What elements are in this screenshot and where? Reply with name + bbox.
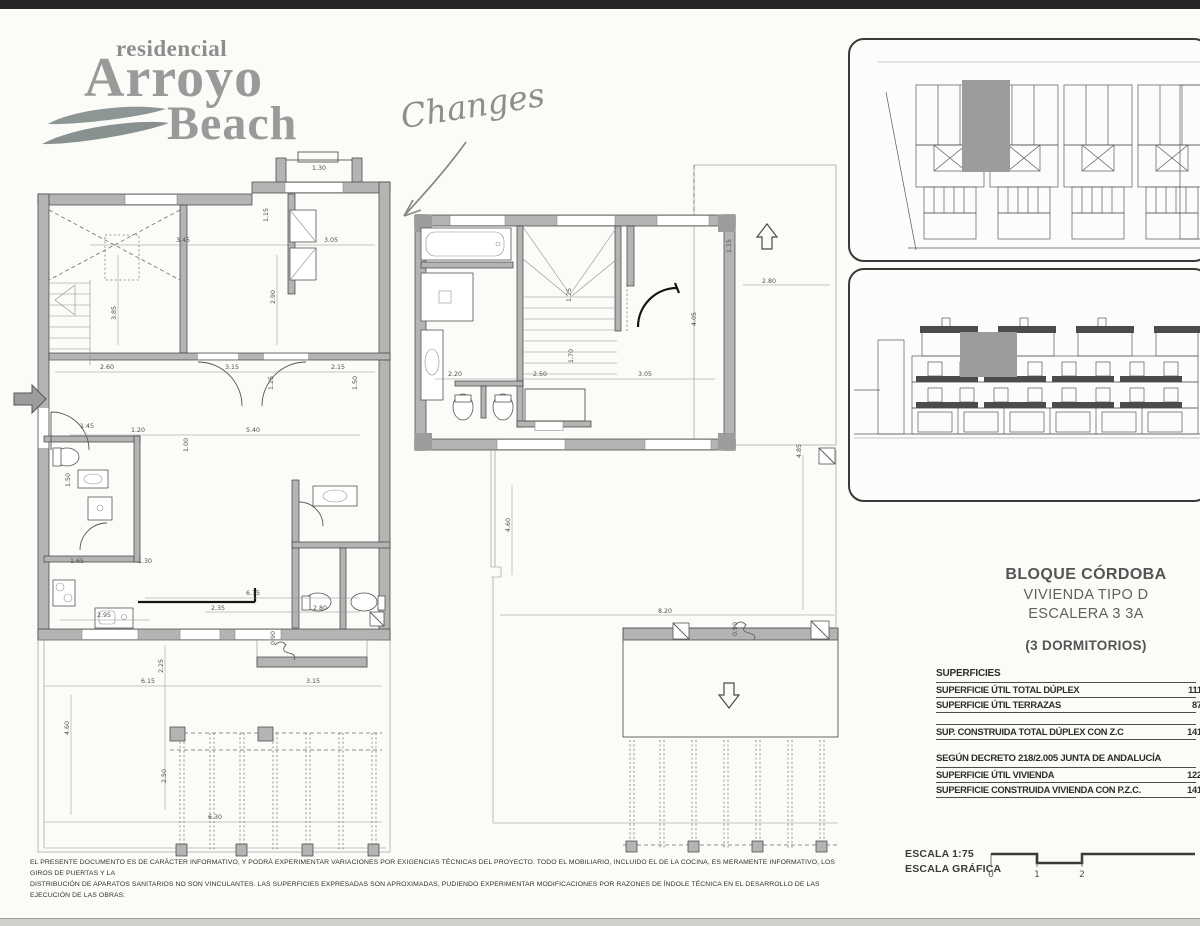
row-value: 122, bbox=[1187, 768, 1200, 782]
svg-text:1.65: 1.65 bbox=[70, 558, 84, 565]
bathtub-icon bbox=[421, 228, 511, 260]
row-value: 141, bbox=[1187, 783, 1200, 797]
svg-text:2.25: 2.25 bbox=[158, 659, 165, 673]
toilet-icon bbox=[53, 448, 79, 466]
svg-text:2: 2 bbox=[1079, 870, 1085, 880]
keyplan-elevation-box bbox=[848, 268, 1200, 502]
svg-text:3.85: 3.85 bbox=[111, 306, 118, 320]
drain-icon bbox=[819, 448, 835, 464]
svg-text:3.05: 3.05 bbox=[638, 371, 652, 378]
svg-text:0: 0 bbox=[988, 870, 994, 880]
entry-arrow-icon bbox=[12, 383, 48, 415]
svg-text:2.90: 2.90 bbox=[270, 290, 277, 304]
toilet-icon bbox=[351, 593, 385, 611]
logo-beach: Beach bbox=[167, 100, 297, 148]
svg-text:3.45: 3.45 bbox=[176, 237, 190, 244]
svg-text:5.40: 5.40 bbox=[246, 427, 260, 434]
svg-text:1.25: 1.25 bbox=[566, 288, 573, 302]
drain-icon bbox=[811, 621, 829, 639]
keyplan-siteplan-box bbox=[848, 38, 1200, 262]
disclaimer-line2: DISTRIBUCIÓN DE APARATOS SANITARIOS NO S… bbox=[30, 879, 842, 901]
svg-text:6.15: 6.15 bbox=[246, 590, 260, 597]
row-value: 87, bbox=[1192, 698, 1200, 712]
svg-text:1.30: 1.30 bbox=[138, 558, 152, 565]
stair-unit: ESCALERA 3 3A bbox=[975, 606, 1197, 622]
door-arc bbox=[638, 288, 677, 327]
superficies-table: SUPERFICIES SUPERFICIE ÚTIL TOTAL DÚPLEX… bbox=[936, 668, 1196, 798]
dwelling-type: VIVIENDA TIPO D bbox=[975, 587, 1197, 603]
graphic-scale-bar: 0 1 2 bbox=[986, 845, 1200, 885]
svg-text:2.95: 2.95 bbox=[97, 612, 111, 619]
block-name: BLOQUE CÓRDOBA bbox=[975, 566, 1197, 584]
disclaimer: EL PRESENTE DOCUMENTO ES DE CARÁCTER INF… bbox=[30, 857, 842, 901]
stairs bbox=[49, 280, 90, 365]
down-arrow-icon bbox=[719, 683, 739, 708]
svg-text:1.15: 1.15 bbox=[726, 239, 733, 253]
balcony-strips bbox=[916, 326, 1200, 408]
svg-text:2.80: 2.80 bbox=[313, 605, 327, 612]
row-value: 141, bbox=[1187, 725, 1200, 739]
scanned-floorplan-sheet: { "logo": {"line1": "residencial", "line… bbox=[0, 0, 1200, 925]
svg-text:1.45: 1.45 bbox=[80, 423, 94, 430]
svg-text:3.05: 3.05 bbox=[324, 237, 338, 244]
svg-text:2.20: 2.20 bbox=[448, 371, 462, 378]
table-row: SUPERFICIE ÚTIL VIVIENDA 122, bbox=[936, 767, 1196, 782]
highlighted-unit bbox=[962, 80, 1010, 172]
table-row: SUPERFICIE ÚTIL TOTAL DÚPLEX 111, bbox=[936, 682, 1196, 697]
ground-floor-plan: 1.30 1.15 3.45 3.05 3.85 2.90 2.60 3.15 … bbox=[30, 150, 405, 860]
svg-text:1.30: 1.30 bbox=[312, 165, 326, 172]
up-arrow-icon bbox=[757, 224, 777, 249]
toilet-icon bbox=[453, 394, 473, 420]
svg-text:1.20: 1.20 bbox=[131, 427, 145, 434]
table-row: SUP. CONSTRUIDA TOTAL DÚPLEX CON Z.C 141… bbox=[936, 724, 1196, 740]
svg-text:4.60: 4.60 bbox=[64, 721, 71, 735]
logo: residencial Arroyo Beach bbox=[40, 36, 350, 161]
pergola-upper-terrace bbox=[623, 740, 838, 852]
svg-text:3.15: 3.15 bbox=[225, 364, 239, 371]
svg-text:1: 1 bbox=[1034, 870, 1040, 880]
superficies-header: SUPERFICIES bbox=[936, 668, 1196, 679]
svg-text:2.35: 2.35 bbox=[211, 605, 225, 612]
cooktop-icon bbox=[53, 580, 75, 606]
svg-text:2.15: 2.15 bbox=[331, 364, 345, 371]
upper-floor-plan: 1.15 2.20 2.50 3.05 1.25 1.70 4.05 2.80 … bbox=[405, 155, 840, 860]
svg-text:6.30: 6.30 bbox=[208, 814, 222, 821]
svg-text:8.20: 8.20 bbox=[658, 608, 672, 615]
title-block: BLOQUE CÓRDOBA VIVIENDA TIPO D ESCALERA … bbox=[975, 566, 1197, 653]
svg-text:1.15: 1.15 bbox=[263, 208, 270, 222]
svg-text:6.15: 6.15 bbox=[141, 678, 155, 685]
svg-text:2.50: 2.50 bbox=[161, 769, 168, 783]
keyplan-elevation bbox=[850, 270, 1200, 496]
svg-text:0.90: 0.90 bbox=[270, 631, 277, 645]
highlighted-unit-elevation bbox=[960, 332, 1017, 377]
table-row: SUPERFICIE CONSTRUIDA VIVIENDA CON P.Z.C… bbox=[936, 782, 1196, 798]
scan-edge-top bbox=[0, 0, 1200, 9]
svg-text:4.60: 4.60 bbox=[505, 518, 512, 532]
svg-text:2.80: 2.80 bbox=[762, 278, 776, 285]
bidet-icon bbox=[493, 394, 513, 420]
svg-text:0.90: 0.90 bbox=[732, 622, 739, 636]
svg-text:2.50: 2.50 bbox=[533, 371, 547, 378]
svg-text:1.70: 1.70 bbox=[568, 349, 575, 363]
row-value: 111, bbox=[1188, 683, 1200, 697]
drain-icon bbox=[370, 612, 384, 626]
decree-header: SEGÚN DECRETO 218/2.005 JUNTA DE ANDALUC… bbox=[936, 753, 1196, 764]
entry-door-arc bbox=[51, 412, 89, 450]
pergola bbox=[170, 727, 382, 856]
svg-text:4.05: 4.05 bbox=[691, 312, 698, 326]
table-row: SUPERFICIE ÚTIL TERRAZAS 87, bbox=[936, 697, 1196, 713]
svg-text:4.85: 4.85 bbox=[796, 444, 803, 458]
svg-text:1.50: 1.50 bbox=[65, 473, 72, 487]
annotation-text: Changes bbox=[398, 75, 547, 136]
svg-text:1.00: 1.00 bbox=[183, 438, 190, 452]
svg-text:1.50: 1.50 bbox=[352, 376, 359, 390]
keyplan-siteplan bbox=[850, 40, 1200, 256]
svg-text:3.15: 3.15 bbox=[306, 678, 320, 685]
drain-icon bbox=[673, 623, 689, 639]
disclaimer-line1: EL PRESENTE DOCUMENTO ES DE CARÁCTER INF… bbox=[30, 857, 842, 879]
svg-text:2.60: 2.60 bbox=[100, 364, 114, 371]
svg-text:1.25: 1.25 bbox=[268, 376, 275, 390]
bedrooms: (3 DORMITORIOS) bbox=[975, 638, 1197, 653]
